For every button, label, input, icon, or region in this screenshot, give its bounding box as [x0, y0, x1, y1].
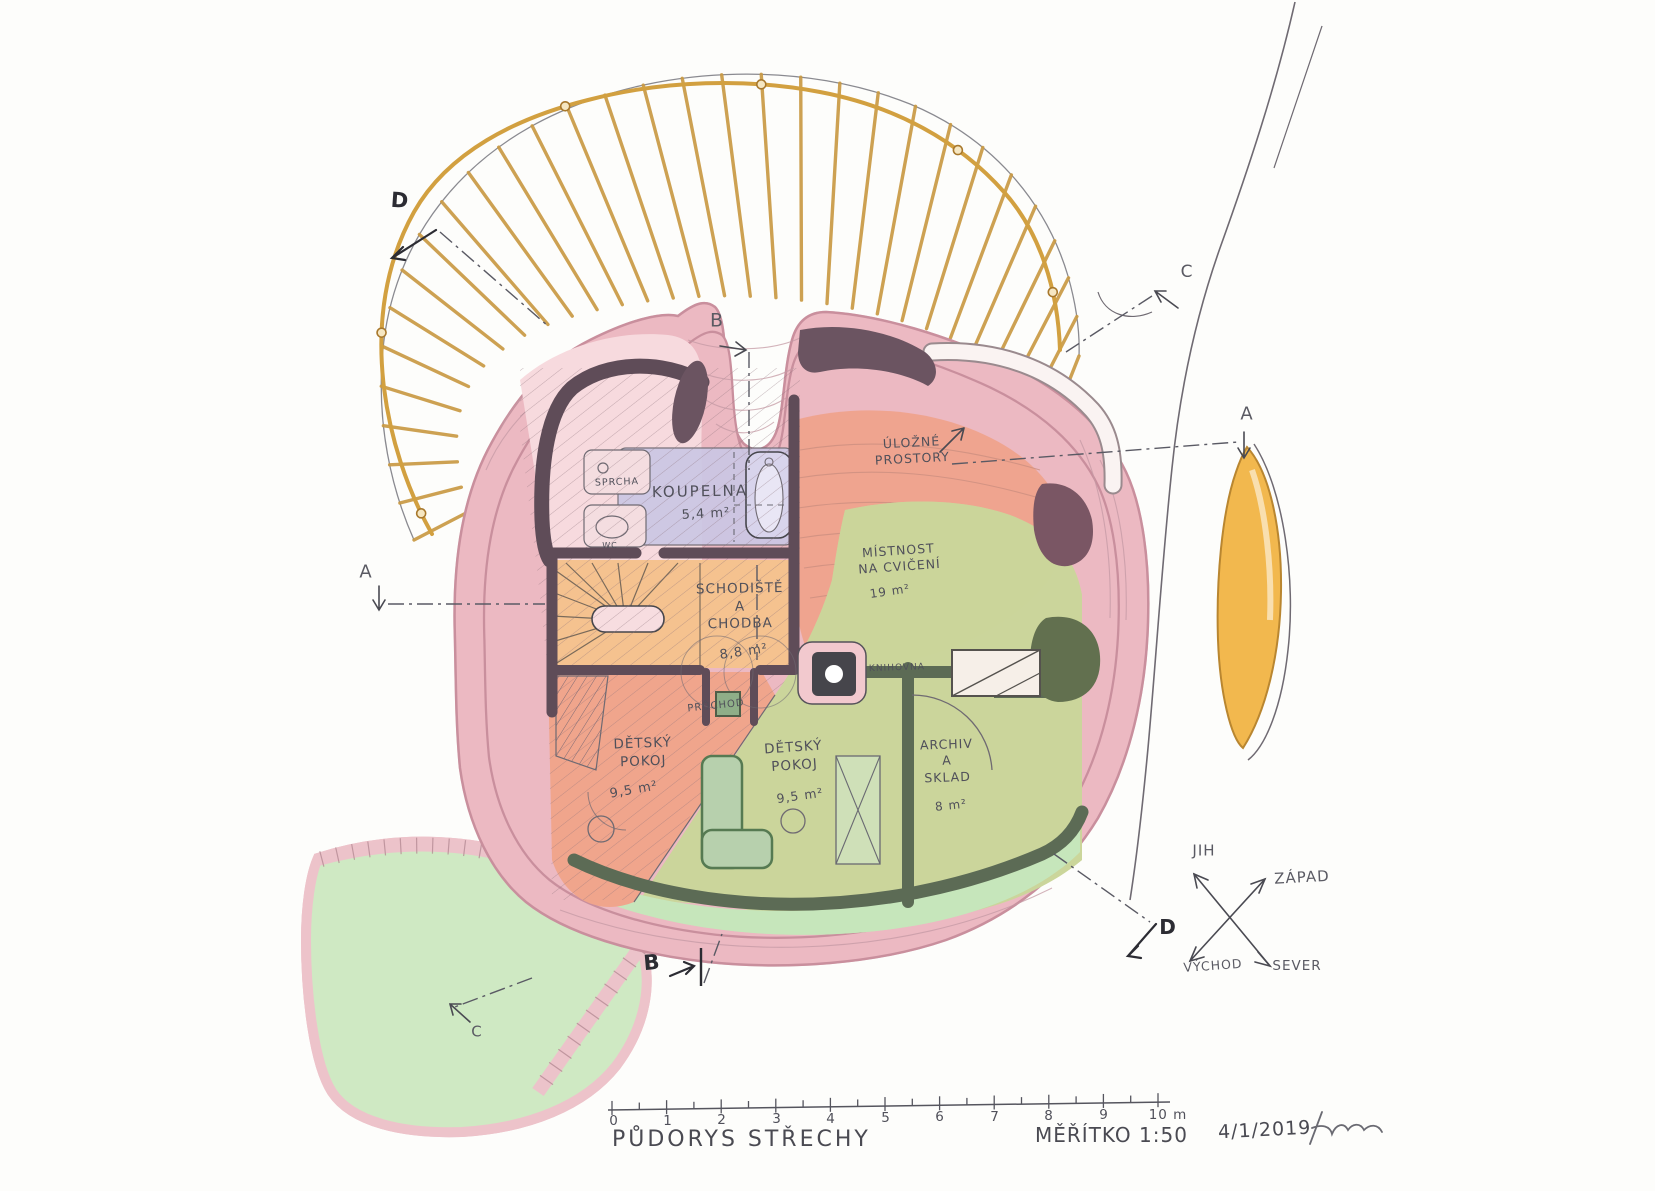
skylight — [952, 650, 1040, 696]
floor-plan-graphics — [0, 0, 1655, 1191]
compass — [1190, 874, 1270, 966]
scale-bar — [608, 1093, 1170, 1115]
passage-post — [716, 692, 740, 716]
section-a-left-arrow — [373, 586, 385, 610]
signature-squiggle — [1310, 1112, 1382, 1144]
section-c-top-arrow — [1155, 291, 1178, 308]
crescent-object — [1218, 444, 1291, 760]
architectural-drawing: SPRCHA WC KOUPELNA 5,4 m² SCHODIŠTĚ A CH… — [0, 0, 1655, 1191]
site-boundary-lines — [1098, 2, 1322, 900]
section-d-bottom-arrow — [1128, 924, 1156, 958]
building — [455, 303, 1149, 965]
section-b-bottom-arrow — [670, 962, 694, 976]
library-column — [798, 642, 866, 704]
